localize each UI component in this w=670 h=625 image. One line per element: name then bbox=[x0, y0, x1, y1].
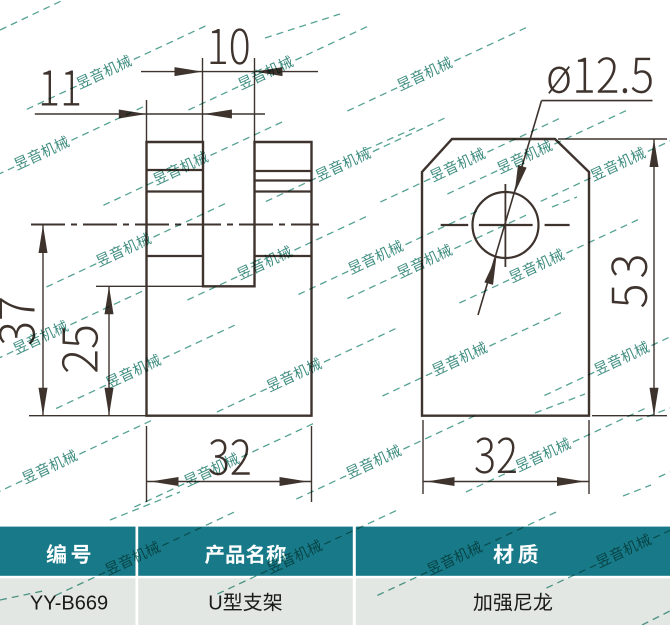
svg-text:YY-B669: YY-B669 bbox=[30, 593, 108, 615]
svg-text:U: U bbox=[208, 593, 222, 615]
